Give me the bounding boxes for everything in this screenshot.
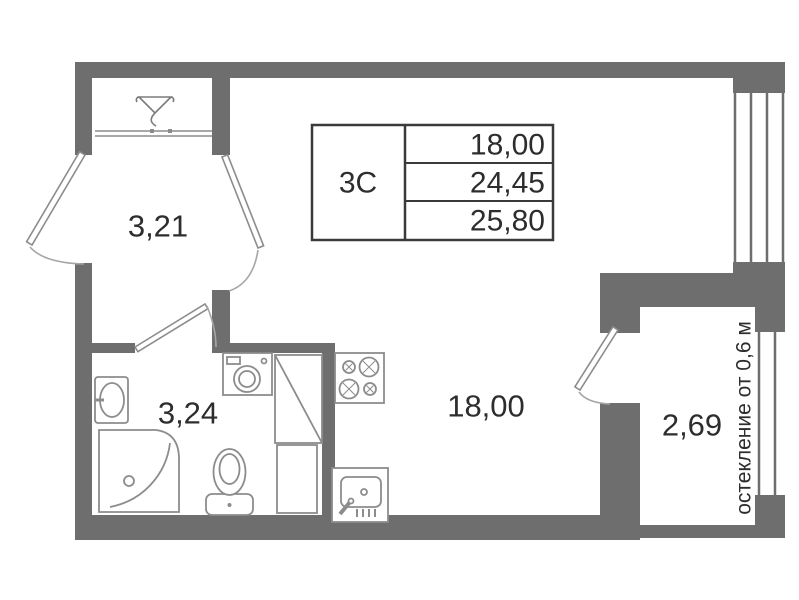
wall-left-upper [75, 62, 92, 155]
hanger-end [171, 97, 174, 102]
area-value-total-with-balcony: 25,80 [470, 205, 545, 238]
hall-door [222, 155, 264, 291]
wall-hall-right-upper [212, 78, 230, 155]
washing-machine-icon [223, 353, 272, 395]
entrance-door [27, 152, 85, 264]
hanger-icon [136, 97, 173, 126]
kitchen-sink-faucet-base [349, 499, 354, 504]
cabinet-icon [277, 445, 317, 513]
bathroom-area-label: 3,24 [158, 396, 218, 431]
wardrobe-track-dot [168, 129, 172, 133]
wall-bathroom-top-left [92, 343, 135, 353]
bathroom-sink-icon [95, 377, 128, 423]
wardrobe [95, 97, 212, 136]
balcony-door-swing-arc [579, 392, 610, 404]
floor-plan: 3С 18,00 24,45 25,80 3,21 3,24 18,00 2,6… [0, 0, 799, 600]
hall-door-swing-arc [229, 250, 258, 291]
kitchen-sink-drain [361, 489, 367, 495]
wall-balcony-glazing-top-block [755, 307, 785, 332]
wall-balcony-door-jamb [600, 273, 640, 333]
kitchen-fixtures [332, 353, 388, 522]
window-main [735, 93, 783, 262]
toilet-flush-button [228, 503, 232, 507]
bathroom-door-leaf [135, 304, 208, 352]
area-value-living: 18,00 [470, 129, 545, 162]
entrance-door-swing-arc [30, 247, 84, 264]
wall-left-lower [75, 263, 92, 540]
bathroom-fixtures [95, 353, 322, 515]
entrance-door-leaf [27, 152, 85, 245]
balcony-area-label: 2,69 [662, 408, 722, 443]
hanger-triangle [139, 97, 171, 113]
floor-plan-page: 3С 18,00 24,45 25,80 3,21 3,24 18,00 2,6… [0, 0, 799, 600]
balcony-glazing [759, 332, 775, 495]
living-area-label: 18,00 [447, 389, 525, 424]
wall-balcony-bottom [638, 525, 785, 538]
shower-icon [99, 430, 179, 512]
wall-top-right-corner [733, 62, 785, 93]
wall-top [75, 62, 785, 78]
vent-shaft-icon [275, 355, 322, 443]
bathroom-door [135, 304, 216, 352]
washer-drawer [227, 357, 240, 364]
shower-tray [99, 430, 179, 512]
toilet-bowl-inner [220, 454, 240, 484]
unit-type-label: 3С [339, 167, 377, 200]
hanger-hook [151, 113, 156, 126]
washer-drum-inner [239, 371, 255, 387]
balcony-door-leaf [575, 327, 618, 390]
glazing-note-label: остекление от 0,6 м [733, 321, 756, 515]
toilet-icon [206, 449, 253, 515]
hall-door-leaf [222, 155, 264, 248]
balcony-door [575, 327, 618, 404]
wall-bathroom-top-right [216, 343, 335, 353]
area-value-total: 24,45 [470, 167, 545, 200]
hall-area-label: 3,21 [128, 209, 188, 244]
washer-knob [262, 359, 267, 364]
shower-drain [124, 476, 134, 486]
hanger-end [136, 97, 139, 102]
kitchen-sink-icon [332, 468, 388, 522]
wall-balcony-partition-lower [600, 403, 640, 540]
stove-icon [335, 353, 384, 403]
wardrobe-track-dot [150, 129, 154, 133]
